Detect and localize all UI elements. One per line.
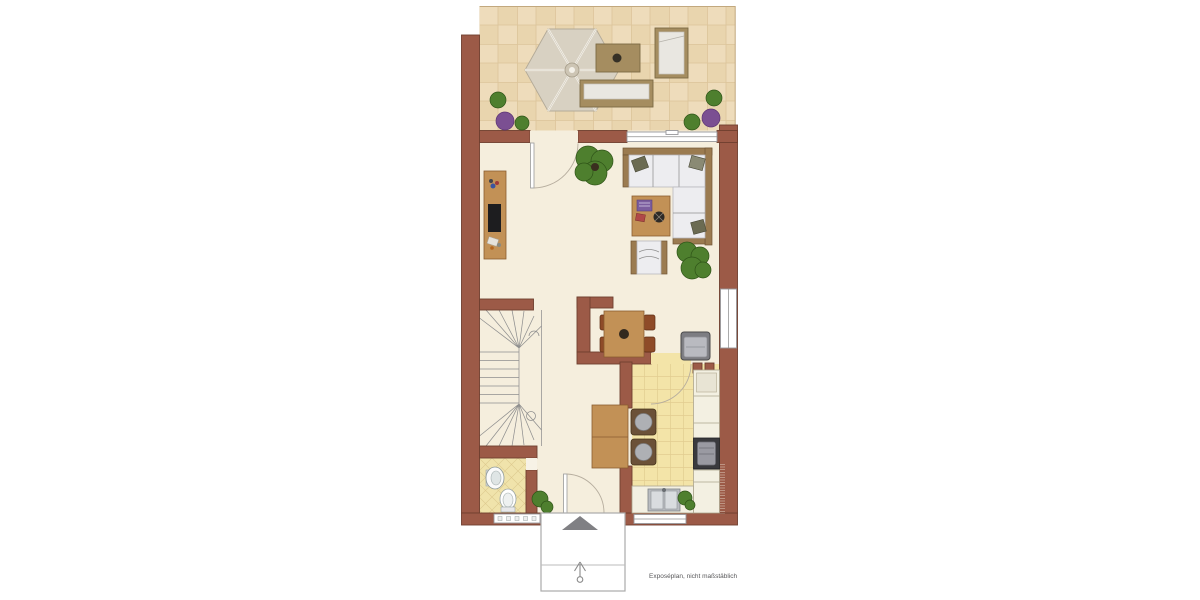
wall-top-3 [717,131,738,143]
window-icon [627,131,717,142]
window-icon [721,289,737,348]
toilet-icon [500,489,516,512]
bathroom-door-threshold [526,458,537,470]
sun-lounger-icon [655,28,688,78]
stove-icon [694,438,720,469]
coffee-table-icon [632,196,670,236]
radiator-icon [494,514,540,523]
terrace-door-threshold [530,131,578,143]
wall-dining-left [577,297,590,352]
dining-chair-icon [644,337,655,352]
armchair-icon [631,241,667,274]
garden-bench-icon [580,80,653,107]
wall-bath-right [526,470,537,513]
floor-plan-image [0,0,1200,600]
floor-plan-page: Exposéplan, nicht maßstäblich [0,0,1200,600]
plan-caption: Exposéplan, nicht maßstäblich [649,572,735,582]
terrace-table-icon [596,44,640,72]
tv-sideboard-icon [484,171,506,259]
wall-watermark [720,464,725,514]
wall-left [462,35,480,513]
front-door-leaf [564,474,568,514]
kitchen-chair-icon [631,409,656,435]
wall-bath-top [480,446,538,458]
washbasin-icon [486,467,504,489]
dining-chair-icon [644,315,655,330]
reading-chair-icon [681,332,710,360]
wall-top-2 [578,131,627,143]
window-icon [634,515,686,524]
wall-top-1 [480,131,531,143]
kitchen-sink-icon [648,488,680,511]
breakfast-table-icon [592,405,628,468]
entrance-porch [541,513,625,591]
table-bowl-icon [619,329,629,339]
wall-kitchen-left-lower [620,466,632,513]
wall-stairs-top [480,299,534,310]
kitchen-chair-icon [631,439,656,465]
wall-kitchen-left-upper [620,362,632,408]
terrace-door-leaf [531,143,535,188]
